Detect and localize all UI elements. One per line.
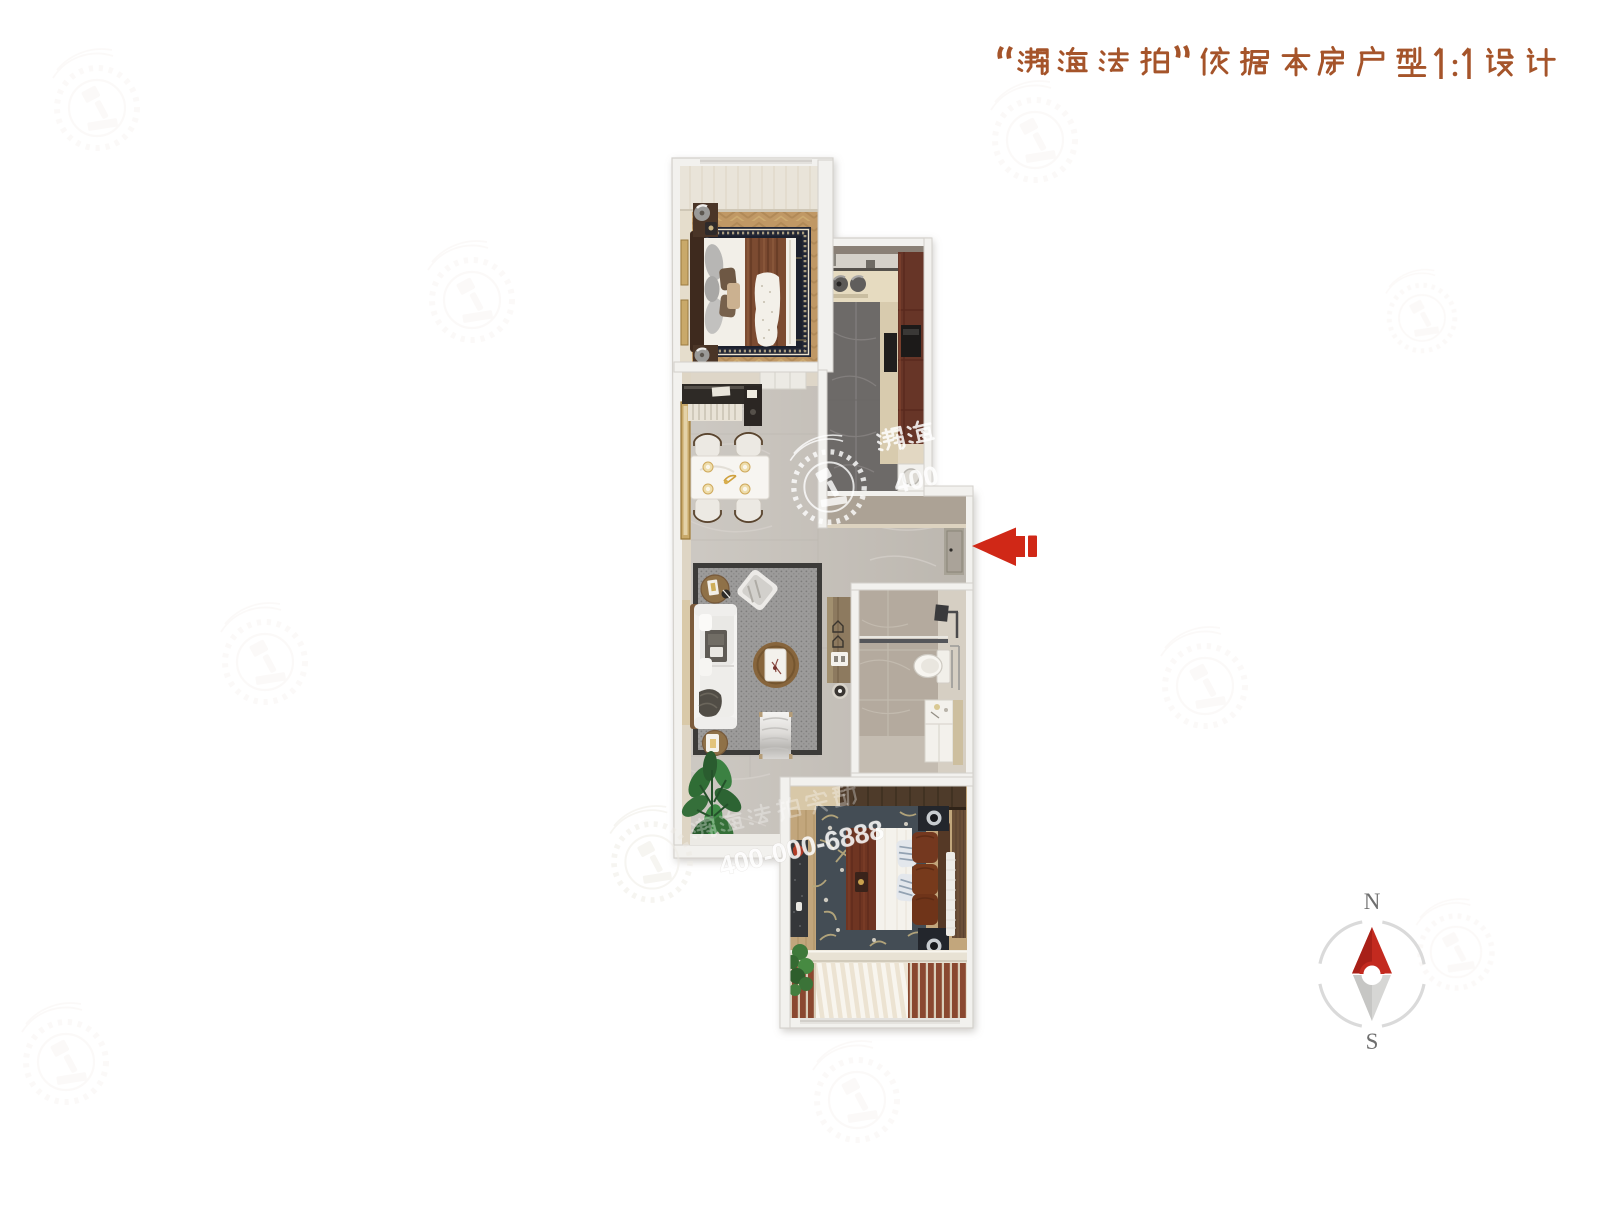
svg-text:N: N [1364, 889, 1381, 914]
svg-text:S: S [1366, 1029, 1379, 1054]
